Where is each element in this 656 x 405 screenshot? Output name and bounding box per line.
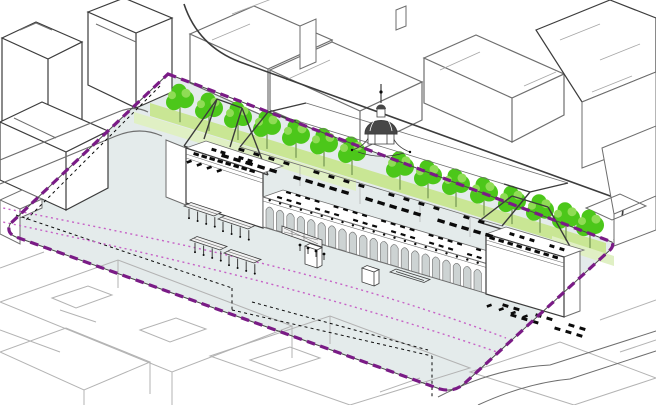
arch-opening [422,254,429,276]
arch-opening [453,263,460,285]
plan-dash [554,327,561,332]
tree-canopy-highlight [312,135,320,143]
arch-opening [339,229,346,251]
pier-dot [425,246,427,248]
arch-opening [266,207,273,229]
arch-opening [349,232,356,254]
tree-canopy-highlight [554,210,562,218]
dome-finial-left [351,149,353,151]
canopy-foot [197,220,199,222]
arch-opening [328,226,335,248]
arch-opening [412,251,419,273]
dome-finial-right [409,151,411,153]
plan-dash [565,330,572,335]
plan-dash [568,323,575,328]
tree-canopy-highlight [182,89,191,98]
pier-dot [435,249,437,251]
pier-dot [393,237,395,239]
white-blocks-northeast [536,0,656,246]
canopy-foot [254,273,256,275]
pier-dot [331,218,333,220]
pier-dot [300,209,302,211]
tree-canopy-highlight [578,217,586,225]
pier-dot [383,233,385,235]
arch-opening [360,235,367,257]
diagram-canvas [0,0,656,405]
pier-dot [445,252,447,254]
tree-canopy-highlight [340,144,348,152]
n-block-3 [424,35,564,142]
tree-canopy-highlight [592,215,601,224]
arch-opening [443,260,450,282]
arch-opening [370,238,377,260]
pin-head [307,247,310,250]
canopy-foot [239,236,241,238]
canopy-foot [228,264,230,266]
dome-drum [368,134,394,144]
small-box [362,266,379,287]
plan-dash [546,317,553,322]
canopy-foot [188,217,190,219]
ghost-block-roof-2 [0,328,150,405]
pier-dot [341,221,343,223]
tree-canopy-highlight [568,207,577,216]
axonometric-site-diagram [0,0,656,405]
nw-block-2 [88,0,172,108]
pier-dot [414,243,416,245]
canopy-foot [205,223,207,225]
canopy-foot [222,230,224,232]
tree-canopy-highlight [226,109,234,117]
arch-opening [474,269,481,291]
arch-opening [380,241,387,263]
arch-opening [464,266,471,288]
canopy-foot [214,226,216,228]
tree-canopy-highlight [486,182,495,191]
pier-dot [310,212,312,214]
pier-dot [456,255,458,257]
tree-canopy-highlight [284,127,292,135]
pier-dot [321,215,323,217]
pier-dot [352,224,354,226]
spire-ball [379,90,382,93]
pin-head [323,253,326,256]
arch-opening [401,248,408,270]
canopy-foot [211,257,213,259]
canopy-foot [220,260,222,262]
canopy-foot [203,254,205,256]
pier-dot [279,202,281,204]
pin-head [315,250,318,253]
pier-dot [477,262,479,264]
pier-dot [362,227,364,229]
canopy-foot [237,267,239,269]
canopy-foot [194,251,196,253]
tree-canopy-highlight [269,115,278,124]
canopy-foot [245,270,247,272]
pier-dot [404,240,406,242]
left-pavilion-end-wall [166,140,186,205]
arch-opening [432,257,439,279]
dome-lantern [377,109,385,117]
plan-dash [576,333,583,338]
tree-canopy-highlight [168,91,176,99]
small-box-body [362,266,379,287]
pier-dot [466,258,468,260]
canopy-foot [231,233,233,235]
tree-canopy-highlight [197,100,205,108]
pin-head [299,244,302,247]
arch-opening [391,244,398,266]
pier-dot [373,230,375,232]
plan-dash [579,326,586,331]
tree-canopy-highlight [458,173,467,182]
pier-dot [289,205,291,207]
pier-dot [269,199,271,201]
canopy-foot [248,239,250,241]
